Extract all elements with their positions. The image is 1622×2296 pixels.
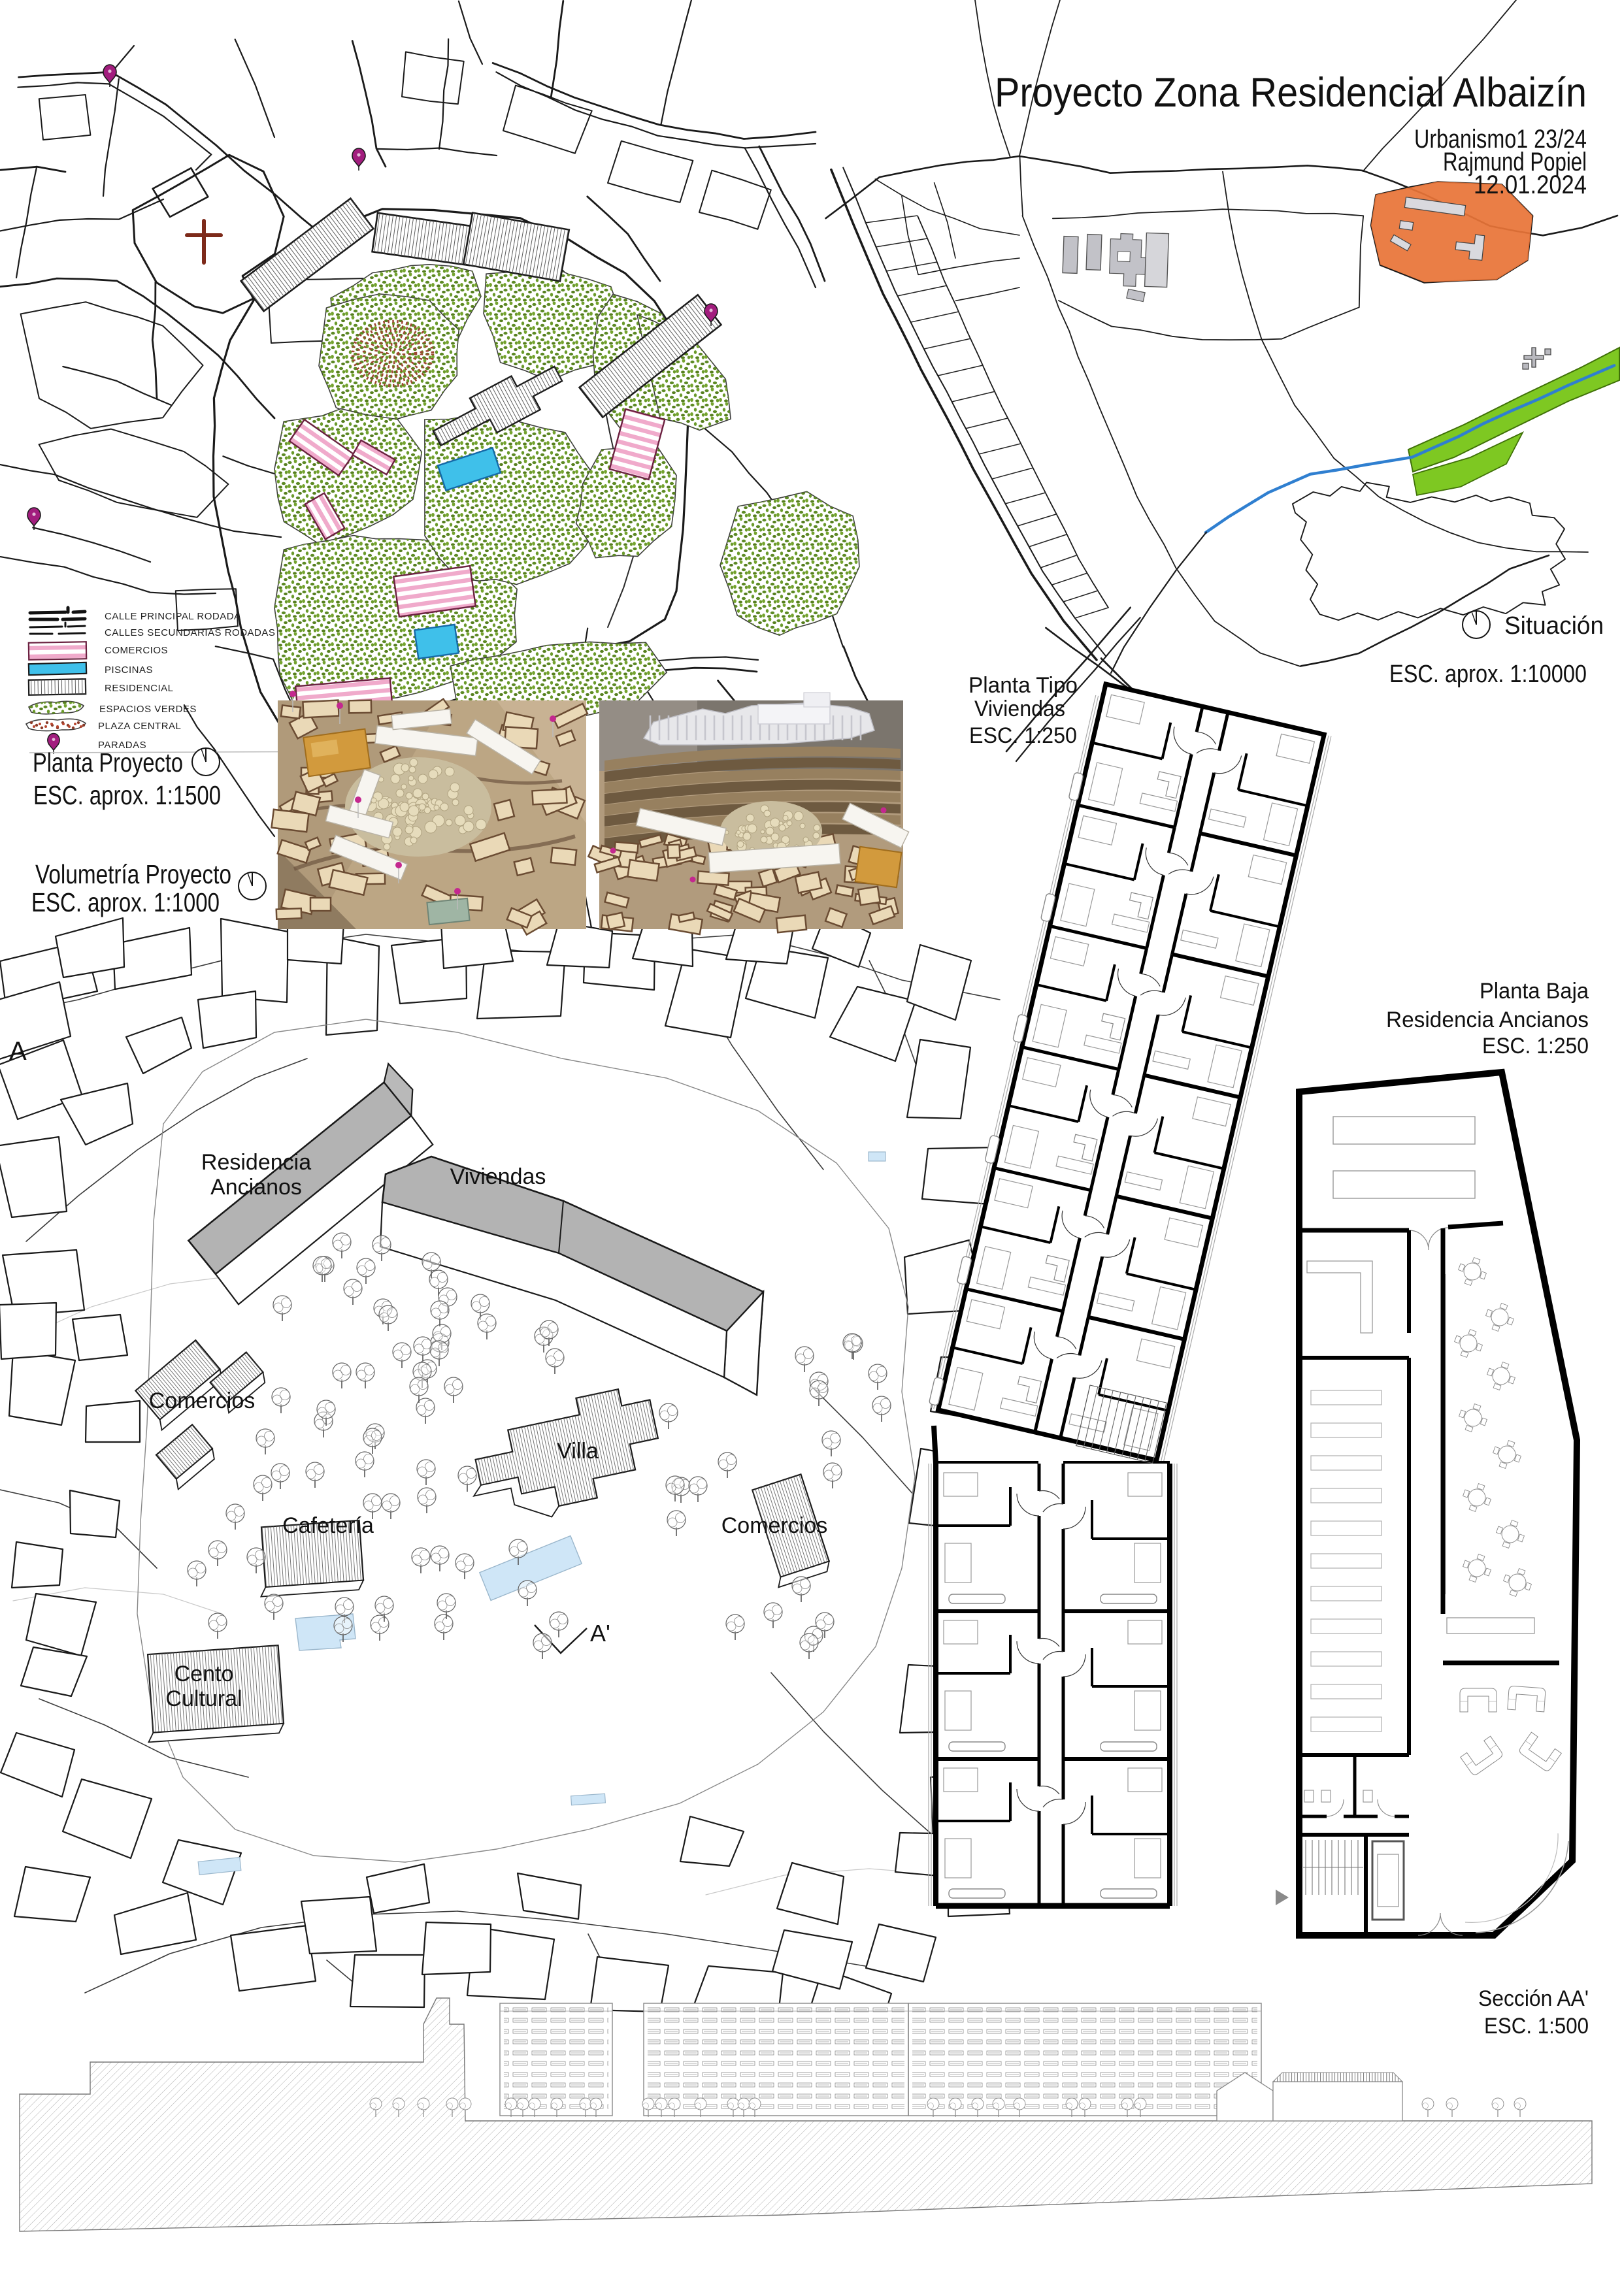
svg-text:Planta Proyecto: Planta Proyecto <box>33 747 183 778</box>
svg-text:Volumetría Proyecto: Volumetría Proyecto <box>35 859 231 889</box>
svg-text:Comercios: Comercios <box>721 1513 827 1538</box>
svg-text:Residencia: Residencia <box>201 1150 311 1175</box>
svg-text:ESC. aprox. 1:1000: ESC. aprox. 1:1000 <box>31 887 220 917</box>
svg-text:Villa: Villa <box>557 1439 599 1464</box>
svg-text:CALLES SECUNDARIAS RODADAS: CALLES SECUNDARIAS RODADAS <box>105 627 275 638</box>
svg-text:CALLE PRINCIPAL RODADA: CALLE PRINCIPAL RODADA <box>105 611 241 622</box>
svg-text:ESC. 1:500: ESC. 1:500 <box>1484 2014 1589 2039</box>
svg-text:A': A' <box>590 1620 610 1647</box>
svg-text:Proyecto Zona Residencial Alba: Proyecto Zona Residencial Albaizín <box>995 70 1587 116</box>
svg-text:Cento: Cento <box>174 1662 234 1686</box>
svg-text:Planta Tipo: Planta Tipo <box>968 673 1078 698</box>
svg-text:12.01.2024: 12.01.2024 <box>1474 171 1587 199</box>
svg-text:Situación: Situación <box>1504 612 1604 640</box>
svg-text:ESPACIOS VERDES: ESPACIOS VERDES <box>99 704 197 715</box>
svg-text:Residencia Ancianos: Residencia Ancianos <box>1386 1008 1589 1032</box>
svg-text:ESC. 1:250: ESC. 1:250 <box>1482 1034 1589 1058</box>
svg-text:ESC. aprox. 1:10000: ESC. aprox. 1:10000 <box>1389 661 1587 688</box>
svg-text:PISCINAS: PISCINAS <box>105 664 153 676</box>
svg-text:Cultural: Cultural <box>165 1686 242 1711</box>
svg-text:Planta Baja: Planta Baja <box>1480 979 1589 1004</box>
svg-text:ESC. 1:250: ESC. 1:250 <box>969 723 1077 748</box>
svg-text:RESIDENCIAL: RESIDENCIAL <box>105 683 174 694</box>
svg-text:ESC. aprox. 1:1500: ESC. aprox. 1:1500 <box>33 780 221 810</box>
svg-text:Sección AA': Sección AA' <box>1478 1986 1589 2011</box>
svg-text:Viviendas: Viviendas <box>974 697 1065 721</box>
svg-text:Comercios: Comercios <box>149 1388 255 1413</box>
svg-text:Ancianos: Ancianos <box>210 1175 302 1200</box>
svg-text:PLAZA CENTRAL: PLAZA CENTRAL <box>98 721 181 732</box>
svg-text:Viviendas: Viviendas <box>450 1164 546 1189</box>
svg-text:A: A <box>9 1037 27 1066</box>
svg-text:Cafetería: Cafetería <box>282 1513 374 1538</box>
svg-text:COMERCIOS: COMERCIOS <box>105 645 168 656</box>
